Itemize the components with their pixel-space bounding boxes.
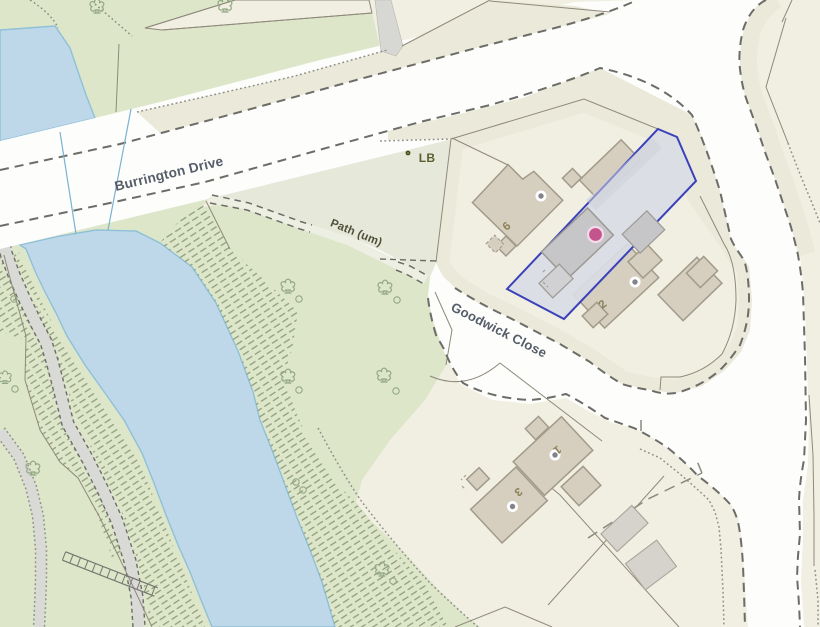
svg-text:LB: LB [419, 151, 436, 165]
